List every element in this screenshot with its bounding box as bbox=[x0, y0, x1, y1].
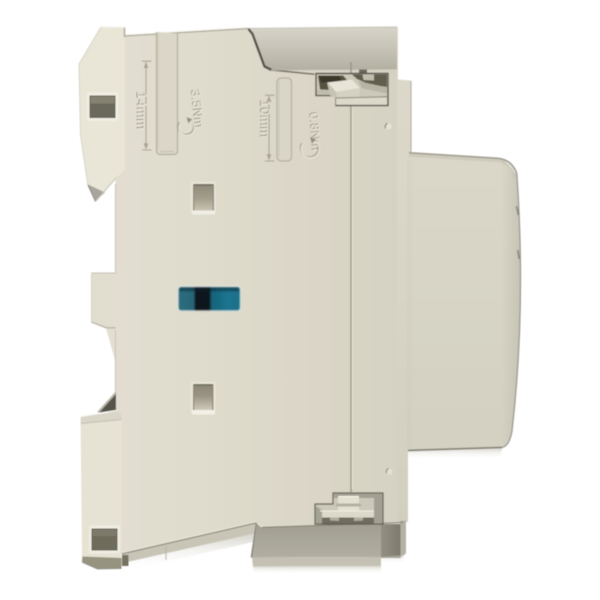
svg-text:10mm: 10mm bbox=[258, 100, 273, 139]
svg-text:0.8Nm: 0.8Nm bbox=[307, 112, 324, 152]
svg-text:14mm: 14mm bbox=[135, 92, 150, 131]
